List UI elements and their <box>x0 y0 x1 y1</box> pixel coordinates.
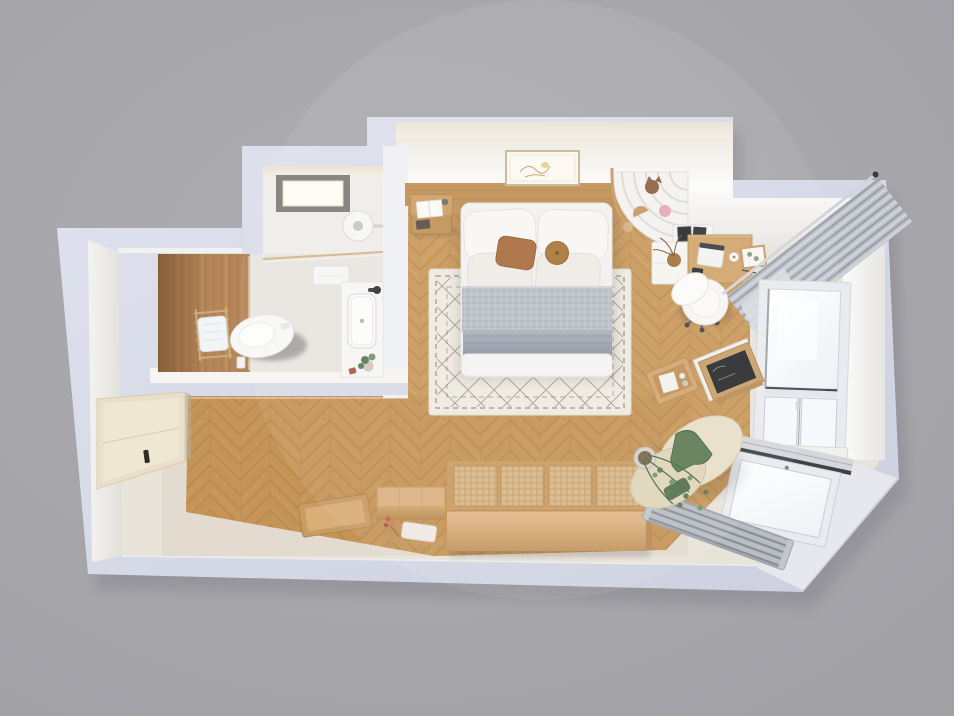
ambient-light <box>240 0 840 600</box>
towel <box>198 316 229 352</box>
right-wall-face <box>843 245 885 460</box>
thermostat <box>237 357 245 368</box>
floor-plan-render <box>0 0 954 716</box>
floor-plan-svg <box>0 0 954 716</box>
closet-shadow <box>185 392 191 461</box>
hallway-top-wall-lip <box>118 248 242 253</box>
